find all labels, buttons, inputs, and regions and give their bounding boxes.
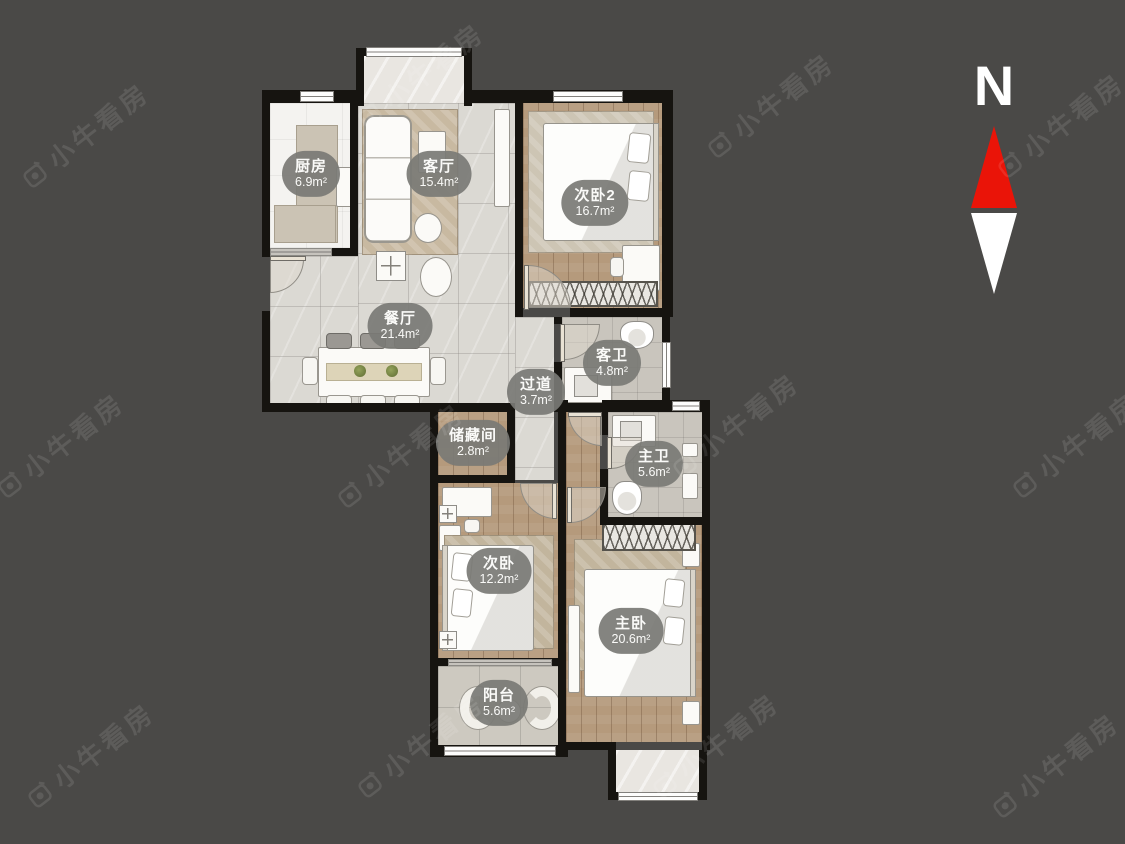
- window-kitchen: [300, 91, 334, 102]
- watermark-text: 小牛看房: [1009, 703, 1125, 806]
- watermark: 小牛看房: [18, 693, 161, 816]
- door-leaf-entry: [270, 256, 306, 261]
- room-area: 5.6m²: [638, 465, 670, 480]
- window-master-bath: [672, 401, 700, 411]
- vase: [420, 257, 452, 297]
- window-bay: [618, 792, 698, 801]
- room-area: 6.9m²: [295, 175, 327, 190]
- kitchen-counter: [274, 205, 336, 243]
- watermark-logo-icon: [17, 157, 52, 192]
- window-bedroom2: [553, 91, 623, 102]
- room-name: 次卧: [480, 555, 519, 572]
- watermark-logo-icon: [987, 787, 1022, 822]
- room-area: 5.6m²: [483, 704, 515, 719]
- shower-fixture: [682, 443, 698, 457]
- slider-kitchen: [270, 248, 332, 256]
- desk-chair: [610, 257, 624, 277]
- watermark: 小牛看房: [1003, 383, 1125, 506]
- watermark-text: 小牛看房: [14, 383, 131, 486]
- pouf: [414, 213, 442, 243]
- room-name: 储藏间: [449, 427, 497, 444]
- watermark: 小牛看房: [0, 383, 132, 506]
- room-label-kitchen: 厨房6.9m²: [282, 151, 340, 197]
- room-label-dining: 餐厅21.4m²: [368, 303, 433, 349]
- watermark-text: 小牛看房: [39, 73, 156, 176]
- room-area: 20.6m²: [612, 632, 651, 647]
- watermark-logo-icon: [1007, 467, 1042, 502]
- room-area: 21.4m²: [381, 327, 420, 342]
- pillow: [626, 132, 651, 164]
- room-label-living: 客厅15.4m²: [407, 151, 472, 197]
- watermark-logo-icon: [22, 777, 57, 812]
- room-name: 厨房: [295, 158, 327, 175]
- sofa: [364, 115, 412, 243]
- bay-floor: [616, 750, 699, 792]
- room-area: 3.7m²: [520, 393, 552, 408]
- watermark-logo-icon: [0, 467, 28, 502]
- pillow: [663, 578, 686, 608]
- room-name: 次卧2: [574, 187, 615, 204]
- room-label-master-bath: 主卫5.6m²: [625, 441, 683, 487]
- room-label-hallway: 过道3.7m²: [507, 369, 565, 415]
- wall: [262, 311, 270, 412]
- side-stool: [376, 251, 406, 281]
- wall: [570, 308, 673, 317]
- room-label-master-bedroom: 主卧20.6m²: [599, 608, 664, 654]
- dining-chair: [326, 333, 352, 349]
- watermark-text: 小牛看房: [44, 693, 161, 796]
- dining-chair: [302, 357, 318, 385]
- wall: [262, 90, 270, 257]
- room-name: 阳台: [483, 687, 515, 704]
- room-name: 客厅: [420, 158, 459, 175]
- room-label-bedroom: 次卧12.2m²: [467, 548, 532, 594]
- wall-symbol: [439, 631, 457, 649]
- room-name: 主卫: [638, 448, 670, 465]
- room-label-balcony: 阳台5.6m²: [470, 680, 528, 726]
- plant: [386, 365, 398, 377]
- tv-console: [494, 109, 510, 207]
- bedroom2-headboard: [653, 123, 659, 241]
- room-area: 2.8m²: [449, 444, 497, 459]
- room-name: 客卫: [596, 347, 628, 364]
- north-arrow-icon: [958, 122, 1030, 302]
- door-leaf-bedroom2: [524, 265, 529, 310]
- master-wardrobe: [602, 523, 696, 551]
- dining-chair: [430, 357, 446, 385]
- room-area: 15.4m²: [420, 175, 459, 190]
- room-name: 餐厅: [381, 310, 420, 327]
- watermark: 小牛看房: [983, 703, 1125, 826]
- floor-plan: 厨房6.9m²客厅15.4m²次卧216.7m²餐厅21.4m²客卫4.8m²过…: [262, 45, 712, 803]
- wall: [702, 400, 710, 750]
- room-label-storage: 储藏间2.8m²: [436, 420, 510, 466]
- door-leaf-master-bath: [607, 437, 612, 469]
- window-balcony: [444, 746, 556, 756]
- room-area: 16.7m²: [574, 204, 615, 219]
- north-label: N: [958, 58, 1030, 114]
- wall: [515, 308, 523, 317]
- door-leaf-master-bedroom: [567, 487, 572, 523]
- balcony-chair: [524, 687, 560, 729]
- nightstand: [682, 701, 700, 725]
- wall: [464, 48, 472, 106]
- desk-chair: [464, 519, 480, 533]
- vestibule-floor: [364, 56, 464, 108]
- room-label-bedroom2: 次卧216.7m²: [561, 180, 628, 226]
- shower-fixture: [682, 473, 698, 499]
- plant: [354, 365, 366, 377]
- wall: [430, 475, 515, 483]
- wall-symbol: [439, 505, 457, 523]
- wall: [600, 517, 702, 525]
- watermark-text: 小牛看房: [724, 43, 841, 146]
- pillow: [663, 616, 686, 646]
- room-name: 主卧: [612, 615, 651, 632]
- pillow: [451, 588, 474, 618]
- master-toilet: [612, 481, 642, 515]
- wall: [558, 412, 566, 745]
- room-area: 12.2m²: [480, 572, 519, 587]
- window-vestibule: [366, 47, 462, 57]
- master-headboard: [690, 569, 696, 697]
- window-guest-bath: [662, 342, 671, 388]
- wall: [554, 403, 670, 412]
- table-runner: [326, 363, 422, 381]
- master-side-cabinet: [568, 605, 580, 693]
- watermark: 小牛看房: [13, 73, 156, 196]
- room-label-guest-bath: 客卫4.8m²: [583, 340, 641, 386]
- wall: [356, 48, 364, 106]
- watermark: 小牛看房: [698, 43, 841, 166]
- door-leaf-corridor: [568, 412, 602, 417]
- wall: [262, 403, 515, 412]
- compass: N: [958, 58, 1030, 298]
- wall: [662, 90, 673, 315]
- wall: [515, 90, 523, 317]
- watermark-text: 小牛看房: [1029, 383, 1125, 486]
- room-name: 过道: [520, 376, 552, 393]
- room-area: 4.8m²: [596, 364, 628, 379]
- wall: [554, 317, 562, 324]
- wall: [350, 103, 358, 250]
- watermark-text: 小牛看房: [1014, 63, 1125, 166]
- door-leaf-guest-bath: [560, 324, 565, 362]
- pillow: [626, 170, 651, 202]
- wall: [430, 403, 438, 757]
- floor-plan-page: 厨房6.9m²客厅15.4m²次卧216.7m²餐厅21.4m²客卫4.8m²过…: [0, 0, 1125, 844]
- slider-bedroom-balcony: [448, 659, 552, 666]
- door-leaf-bedroom: [552, 483, 557, 519]
